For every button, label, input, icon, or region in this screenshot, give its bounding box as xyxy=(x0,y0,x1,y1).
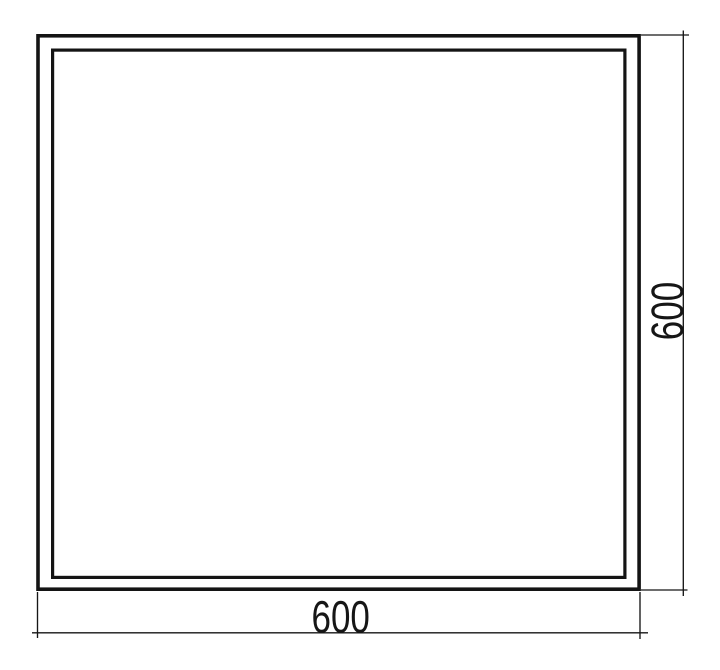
svg-text:600: 600 xyxy=(642,282,693,340)
svg-text:600: 600 xyxy=(311,591,369,642)
